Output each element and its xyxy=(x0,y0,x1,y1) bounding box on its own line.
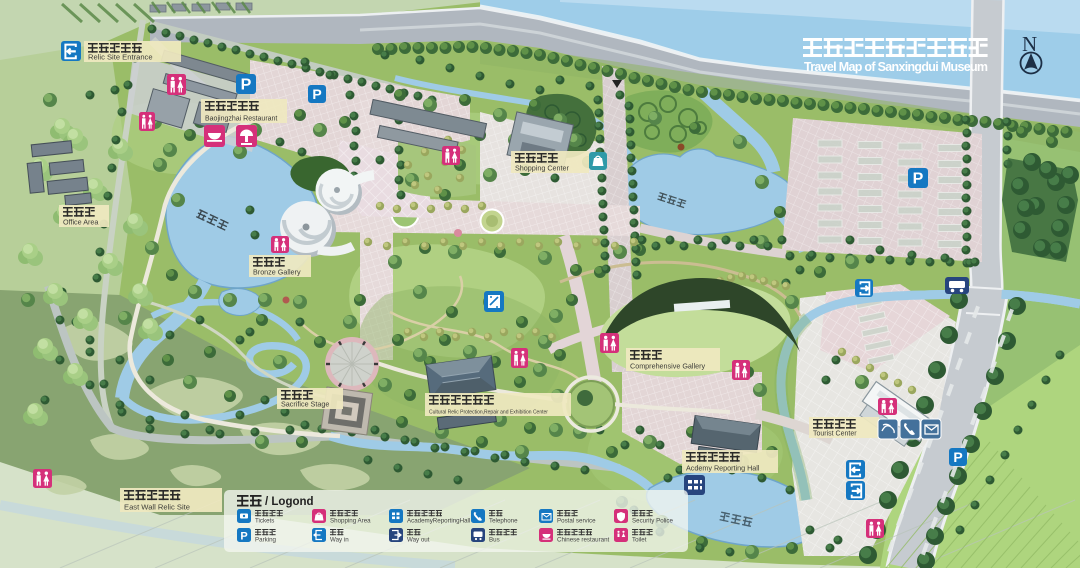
svg-text:/ Logond: / Logond xyxy=(265,496,314,508)
svg-text:P: P xyxy=(240,531,247,543)
svg-text:Way out: Way out xyxy=(407,537,430,544)
svg-text:AcademyReportingHall: AcademyReportingHall xyxy=(407,518,470,525)
svg-text:Way in: Way in xyxy=(330,537,349,544)
svg-text:Telephone: Telephone xyxy=(489,518,518,525)
svg-text:P: P xyxy=(913,171,924,188)
svg-text:Shopping Area: Shopping Area xyxy=(330,518,371,525)
svg-text:Shopping Center: Shopping Center xyxy=(515,164,570,173)
svg-text:Relic Site Entrance: Relic Site Entrance xyxy=(88,53,153,62)
svg-text:East Wall Relic Site: East Wall Relic Site xyxy=(124,503,190,512)
svg-text:Bus: Bus xyxy=(489,537,500,544)
svg-text:Toilet: Toilet xyxy=(632,537,647,544)
svg-text:Acdemy Reporting Hall: Acdemy Reporting Hall xyxy=(686,464,760,473)
svg-text:Baojingzhai Restaurant: Baojingzhai Restaurant xyxy=(205,116,277,123)
svg-text:Chinese restaurant: Chinese restaurant xyxy=(557,537,610,544)
svg-text:P: P xyxy=(241,77,252,94)
svg-text:Security Police: Security Police xyxy=(632,518,673,525)
svg-text:Office Area: Office Area xyxy=(63,218,98,227)
svg-text:P: P xyxy=(953,449,962,465)
svg-text:Sacrifice Stage: Sacrifice Stage xyxy=(281,400,329,409)
svg-text:Tourist Center: Tourist Center xyxy=(813,431,857,438)
svg-text:Comprehensive Gallery: Comprehensive Gallery xyxy=(630,362,706,371)
svg-text:Tickets: Tickets xyxy=(255,518,274,525)
svg-text:Postal service: Postal service xyxy=(557,518,596,525)
svg-text:Cultural Relic Protection,Repa: Cultural Relic Protection,Repair and Exh… xyxy=(429,410,548,416)
svg-text:Bronze Gallery: Bronze Gallery xyxy=(253,268,301,277)
svg-text:Travel Map of Sanxingdui Museu: Travel Map of Sanxingdui Museum xyxy=(804,60,988,74)
svg-text:Parking: Parking xyxy=(255,537,277,544)
svg-text:P: P xyxy=(312,86,321,102)
